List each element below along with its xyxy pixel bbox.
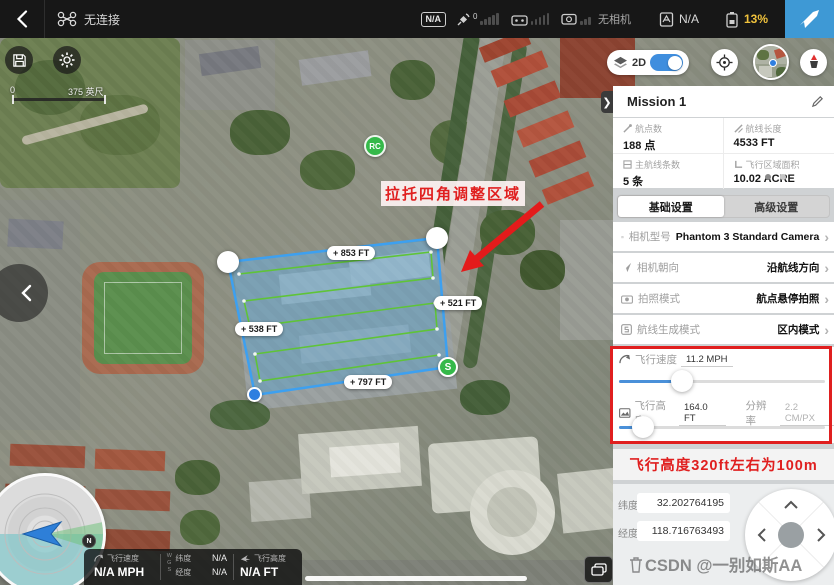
flight-mode-icon: [659, 11, 674, 27]
map-settings-button[interactable]: [53, 46, 81, 74]
coordinates-section: 纬度 32.202764195 经度 118.716763493: [613, 484, 834, 585]
gps-status: 0: [456, 12, 477, 27]
compass-reset-button[interactable]: [800, 49, 827, 76]
aircraft-connection-status[interactable]: 无连接: [45, 11, 132, 28]
polygon-corner-dot[interactable]: [247, 387, 262, 402]
gear-icon: [59, 52, 75, 68]
resolution-value: 2.2 CM/PX: [780, 401, 834, 426]
flight-sliders: 飞行速度 11.2 MPH 飞行高度 164.0 FT 分辨率 2.2 CM/P…: [613, 347, 834, 443]
nudge-center-button[interactable]: [778, 522, 804, 548]
altitude-flight-icon: [240, 554, 251, 563]
media-library-button[interactable]: [584, 556, 613, 583]
setting-route-mode[interactable]: 航线生成模式 区内模式 ›: [613, 315, 834, 344]
takeoff-plane-icon: [799, 9, 821, 29]
map-mode-control: 2D: [607, 50, 689, 75]
crosshair-icon: [716, 54, 733, 71]
chevron-up-icon: [784, 500, 798, 509]
polygon-corner-handle[interactable]: [217, 251, 239, 273]
waypoint-icon: [623, 124, 632, 133]
edit-mission-icon[interactable]: [811, 95, 824, 108]
latitude-label: 纬度: [618, 497, 638, 512]
back-button[interactable]: [0, 10, 44, 28]
polygon-corner-handle[interactable]: [426, 227, 448, 249]
speed-slider-thumb[interactable]: [671, 370, 693, 392]
camera-icon: [561, 13, 577, 25]
battery-status[interactable]: 13%: [725, 11, 768, 28]
flight-mode-status: N/A: [659, 11, 699, 27]
edge-length-pill[interactable]: + 797 FT: [344, 375, 392, 389]
signal-na-badge: N/A: [421, 12, 447, 27]
drone-icon: [57, 11, 77, 27]
setting-camera-heading[interactable]: 相机朝向 沿航线方向 ›: [613, 253, 834, 282]
mission-title: Mission 1: [627, 94, 811, 109]
nudge-left-button[interactable]: [752, 526, 770, 544]
chevron-left-icon: [757, 528, 766, 542]
minimap-button[interactable]: [753, 44, 789, 80]
latitude-input[interactable]: 32.202764195: [637, 493, 730, 513]
chevron-right-icon: ›: [824, 261, 829, 275]
chevron-right-icon: ›: [824, 230, 829, 244]
layers-icon: [613, 56, 628, 69]
gps-signal-bars: [480, 13, 499, 25]
top-status-bar: 无连接 N/A 0 无相机 N/A 13%: [0, 0, 834, 38]
save-icon: [12, 53, 27, 68]
telemetry-speed: 飞行速度 N/A MPH: [84, 549, 160, 585]
tab-advanced-settings[interactable]: 高级设置: [724, 196, 830, 217]
panel-collapse-arrow[interactable]: ❯: [601, 91, 613, 113]
area-ruler-icon: [734, 160, 743, 169]
lines-count-icon: [623, 160, 632, 169]
nudge-up-button[interactable]: [782, 495, 800, 513]
tutorial-annotation: 拉托四角调整区域: [381, 181, 525, 206]
edge-length-pill[interactable]: + 538 FT: [235, 322, 283, 336]
rc-position-marker: RC: [364, 135, 386, 157]
camera-status: 无相机: [561, 11, 631, 27]
route-mode-icon: [621, 324, 632, 335]
scale-start: 0: [10, 85, 15, 95]
telemetry-bar: 飞行速度 N/A MPH WGS 纬度N/A 经度N/A 飞行高度 N/A FT: [84, 549, 302, 585]
speed-icon: [619, 354, 631, 365]
altitude-slider-track[interactable]: [619, 426, 825, 429]
heading-icon: [621, 262, 632, 273]
telemetry-altitude: 飞行高度 N/A FT: [234, 549, 292, 585]
altitude-icon: [619, 408, 631, 418]
edge-length-pill[interactable]: + 853 FT: [327, 246, 375, 260]
longitude-input[interactable]: 118.716763493: [637, 521, 730, 541]
stats-page-dots[interactable]: [765, 174, 786, 180]
tab-basic-settings[interactable]: 基础设置: [618, 196, 724, 217]
datum-label: WGS: [166, 553, 172, 585]
longitude-label: 经度: [618, 525, 638, 540]
settings-tabs: 基础设置 高级设置: [617, 195, 830, 218]
locate-button[interactable]: [711, 49, 738, 76]
stat-main-lines: 主航线条数 5 条: [613, 154, 724, 189]
compass-north-badge: N: [82, 534, 96, 548]
back-chevron-icon: [16, 10, 28, 28]
map-scale-bar: [12, 98, 106, 101]
map-mode-label: 2D: [632, 57, 646, 69]
mission-panel: ❯ Mission 1 航点数 188 点 航线长度 4533 FT 主航线条数…: [613, 86, 834, 585]
speed-slider-track[interactable]: [619, 380, 825, 383]
altitude-note: 飞行高度320ft左右为100m: [613, 449, 834, 480]
photo-mode-icon: [621, 294, 633, 304]
altitude-value-field[interactable]: 164.0 FT: [679, 401, 726, 426]
stat-route-length: 航线长度 4533 FT: [724, 118, 834, 154]
home-indicator[interactable]: [305, 576, 527, 581]
altitude-slider-thumb[interactable]: [632, 416, 654, 438]
route-length-icon: [734, 124, 743, 133]
takeoff-button[interactable]: [785, 0, 834, 38]
save-mission-button[interactable]: [5, 46, 33, 74]
edge-length-pill[interactable]: + 521 FT: [434, 296, 482, 310]
app-screen: S RC + 853 FT + 521 FT + 538 FT + 797 FT…: [0, 0, 834, 585]
minimap-position-dot: [769, 59, 777, 67]
route-start-marker[interactable]: S: [438, 357, 458, 377]
remote-controller-icon: [511, 13, 528, 26]
telemetry-coordinates: WGS 纬度N/A 经度N/A: [161, 549, 233, 585]
battery-icon: [725, 11, 739, 28]
rc-status: [511, 13, 550, 26]
chevron-right-icon: ›: [824, 292, 829, 306]
scale-end: 375 英尺: [68, 85, 104, 98]
setting-camera-model[interactable]: 相机型号 Phantom 3 Standard Camera ›: [613, 222, 834, 251]
stat-waypoints: 航点数 188 点: [613, 118, 724, 154]
nudge-dpad: [745, 489, 834, 581]
setting-photo-mode[interactable]: 拍照模式 航点悬停拍照 ›: [613, 284, 834, 313]
battery-percent: 13%: [744, 12, 768, 26]
chevron-right-icon: ›: [824, 323, 829, 337]
satellite-icon: [456, 12, 472, 27]
compass-icon: [806, 54, 822, 71]
camera-icon: [621, 232, 624, 242]
nudge-right-button[interactable]: [812, 526, 830, 544]
photos-icon: [591, 563, 607, 576]
chevron-left-icon: [19, 284, 33, 302]
2d-mode-toggle[interactable]: [650, 54, 683, 71]
stat-area: 飞行区域面积 10.02 ACRE: [724, 154, 834, 189]
chevron-right-icon: [817, 528, 826, 542]
mission-stats: 航点数 188 点 航线长度 4533 FT 主航线条数 5 条 飞行区域面积 …: [613, 118, 834, 188]
mission-header: ❯ Mission 1: [613, 86, 834, 117]
speed-icon: [94, 554, 104, 563]
speed-value-field[interactable]: 11.2 MPH: [681, 353, 733, 367]
